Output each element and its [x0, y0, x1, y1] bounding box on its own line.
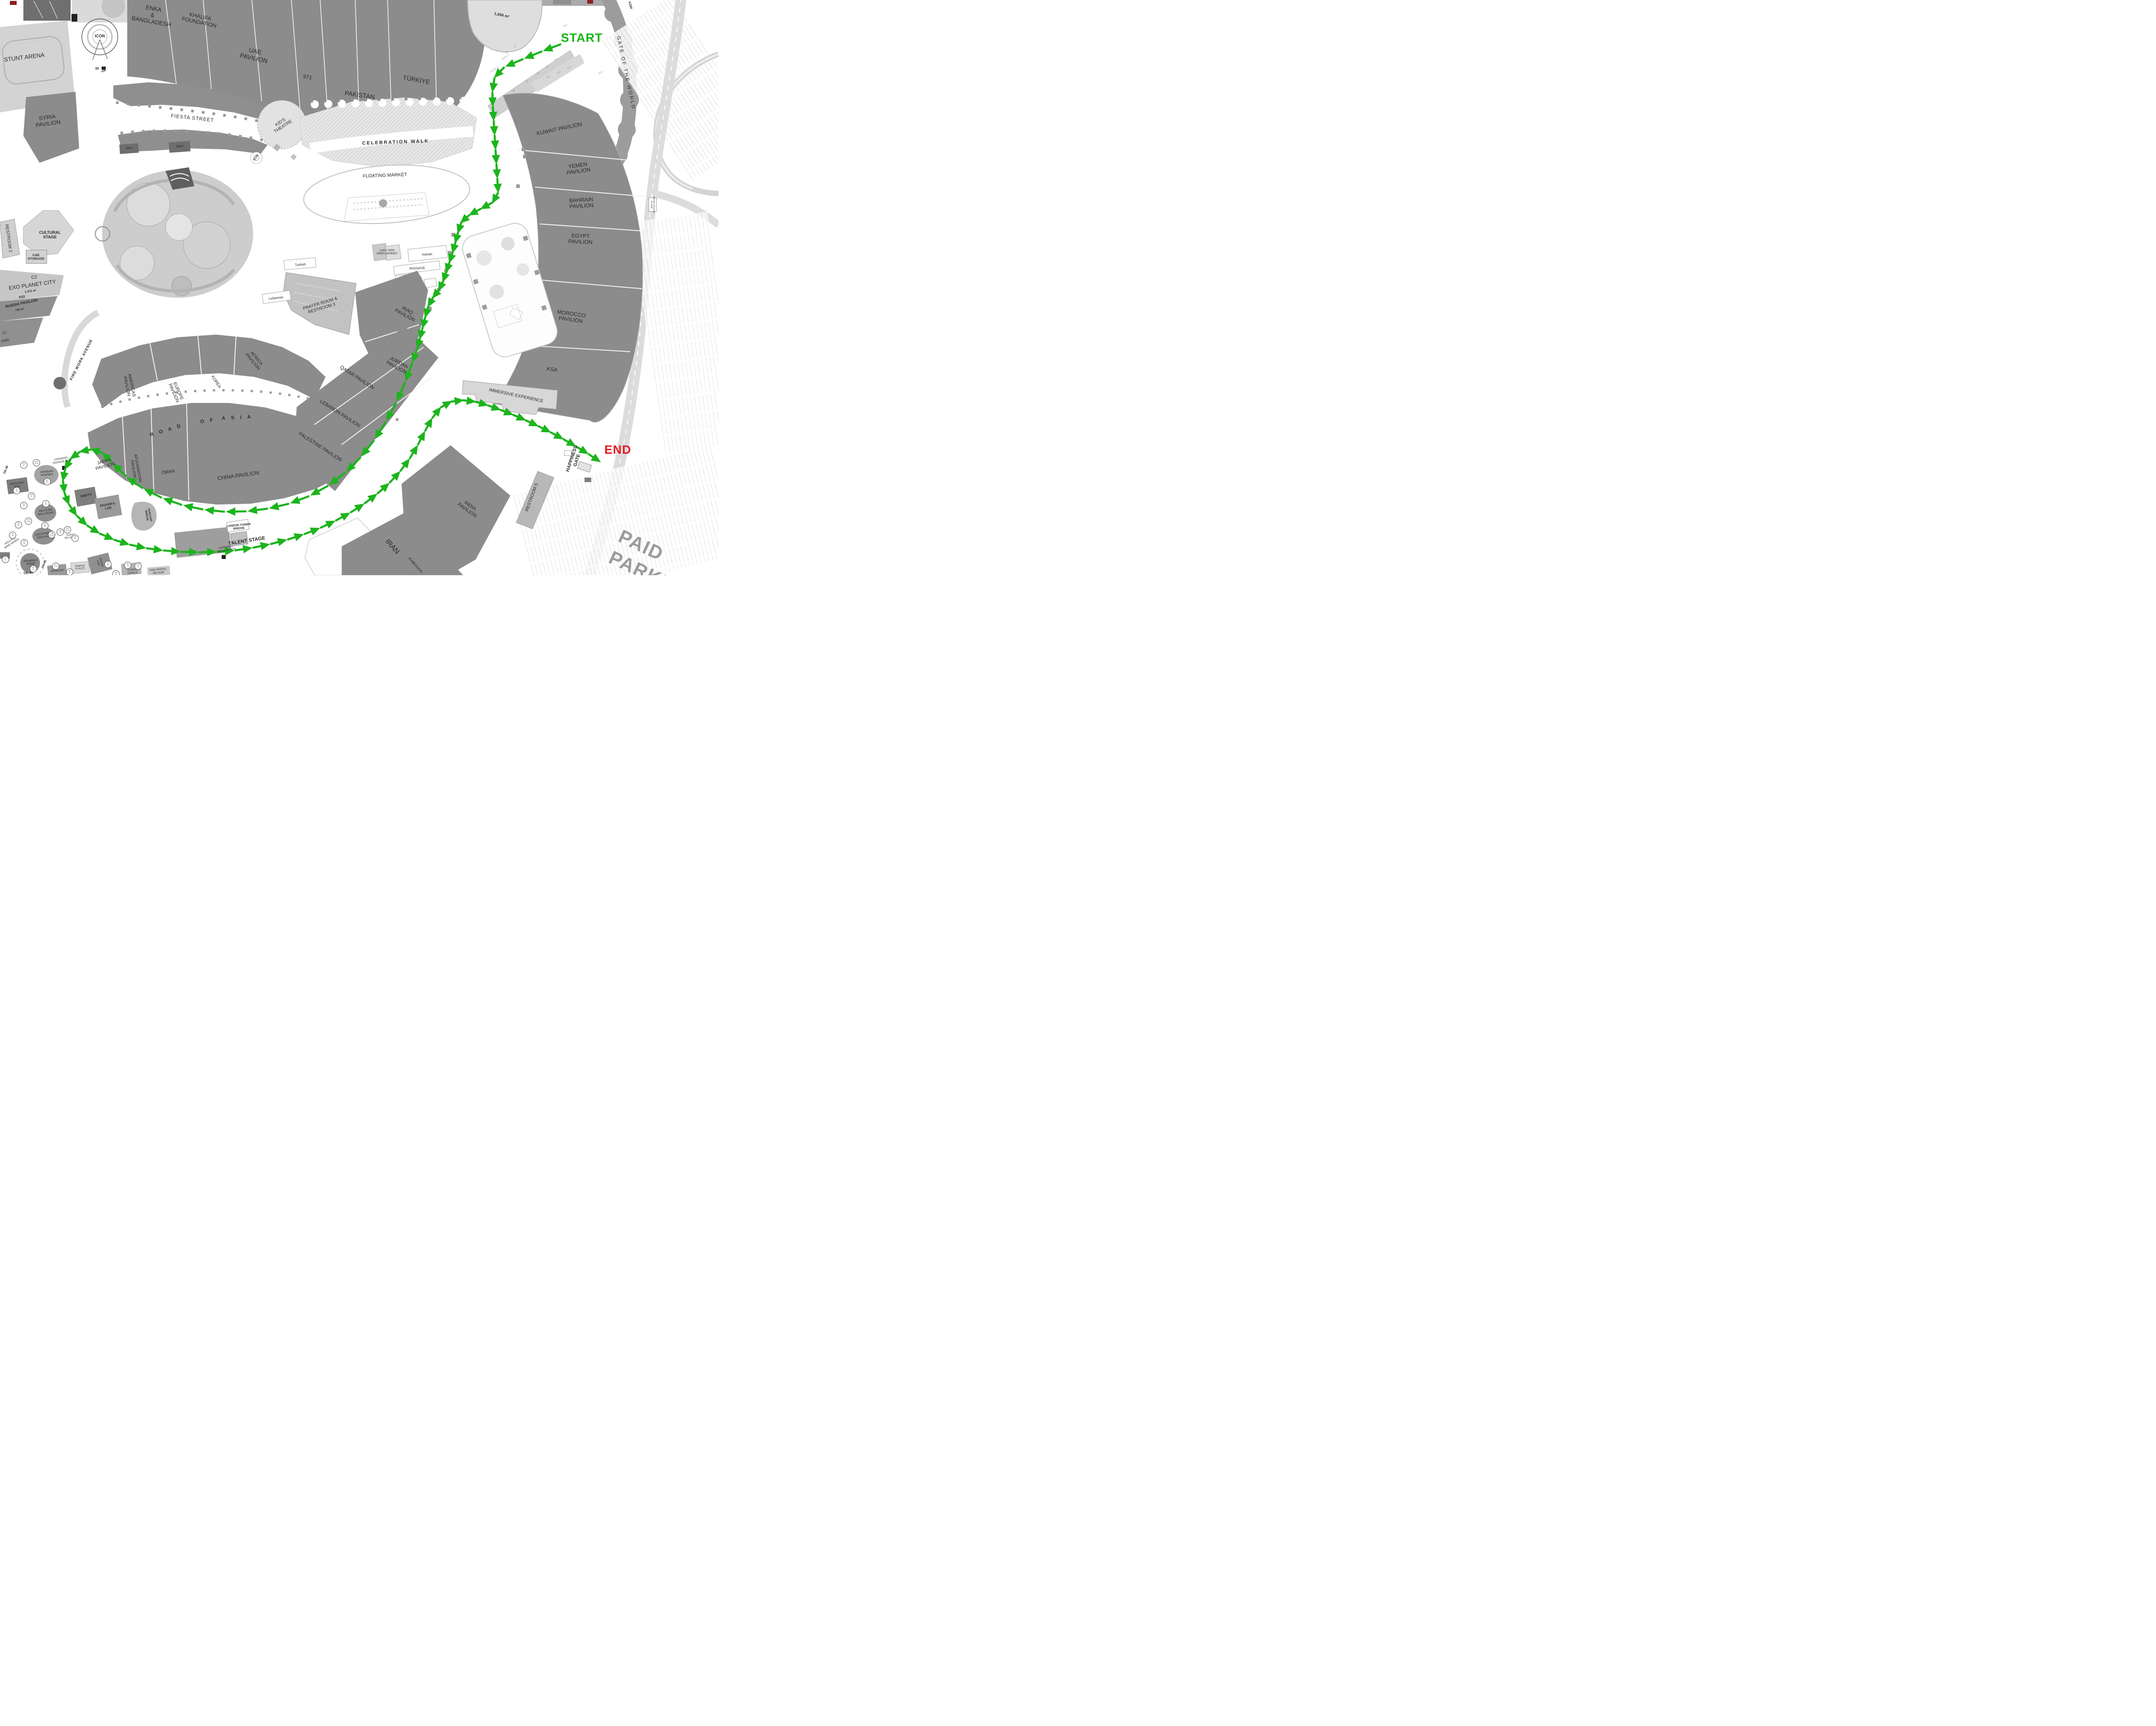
badge-atm-01: ATM 01 — [28, 492, 35, 500]
label-iranian: Iranian — [422, 252, 432, 257]
label-fire-work-avenue: FIRE WORK AVENUE — [69, 339, 94, 381]
badge-sg-21: SG 21 — [134, 563, 142, 570]
badge-ag-19: AG 19 — [124, 562, 131, 569]
label-waste-station: WASTE STATION 52 SQM — [651, 197, 655, 213]
badge-sg-04: SG 04 — [15, 521, 22, 528]
label-palestine-pavilion: PALESTINE PAVILION — [298, 431, 343, 463]
badge-vm-03-04: VM 03-04 — [33, 459, 40, 466]
label-s12: S12 — [563, 23, 568, 28]
label-khalifa-foundation: KHALIFA FOUNDATION — [181, 10, 218, 30]
label-ksa: KSA — [546, 366, 558, 374]
label-mexican-balloons: MEXICAN BALLOONS — [38, 508, 54, 516]
label-ce-storage: C&E STORAGE — [28, 254, 45, 261]
label-celebration-walk: CELEBRATION WALK — [362, 139, 429, 147]
badge-gr-01: GR 01 — [71, 535, 79, 542]
label-c2-area: 1,472 m² — [25, 289, 37, 294]
label-n971: 971 — [303, 74, 312, 81]
label-london-tower-bridge: LONDON TOWER BRIDGE — [226, 523, 251, 531]
label-p21-frag-2: AND — [1, 338, 9, 344]
label-retail-b: RETAIL B — [491, 66, 499, 72]
badge-at-09: AT 09 — [41, 522, 49, 529]
label-turkiye: TÜRKİYE — [402, 74, 430, 86]
label-s1: S1 — [554, 58, 558, 62]
label-prayer-room: PRAYER ROOM & RESTROOM 3 — [303, 296, 339, 316]
label-road-of-asia-3: A S I A — [222, 414, 253, 421]
label-qatar-pavilion: QATAR PAVILION — [339, 365, 375, 391]
label-lebanese: Lebanese — [268, 295, 284, 301]
label-stunt-arena: STUNT ARENA — [4, 52, 45, 63]
label-s10: S10 — [556, 71, 562, 76]
label-c2: C2 — [31, 275, 37, 281]
label-iraq-pavilion: IRAQ PAVILION — [394, 303, 419, 323]
label-cs-1: CS-1 — [126, 147, 133, 150]
label-s2: S2 — [545, 65, 549, 69]
label-passage: PASSAGE — [409, 266, 425, 271]
label-turkish: Turkish — [295, 263, 306, 267]
label-roaming-rome: ROAMING ROME — [23, 559, 38, 566]
badge-sg-03: SG 03 — [20, 502, 27, 509]
badge-vm-08: VM 08 — [57, 528, 64, 536]
label-floating-market: FLOATING MARKET — [363, 172, 407, 179]
label-kuwait-pavilion: KUWAIT PAVILION — [536, 121, 582, 137]
label-paw-patrol: PAW PATROL 300 SQM — [150, 568, 167, 575]
label-female-toilet: FEMALE (TOILET) — [75, 564, 85, 571]
label-europe-pavilion: EUROPE PAVILION — [167, 381, 185, 403]
label-iran-pavilion: IRAN — [384, 538, 401, 556]
label-k200: K200 — [627, 1, 633, 9]
label-enka-bangladesh: ENKA & BANGLADESH — [131, 2, 174, 28]
label-morocco-pavilion: MOROCCO PAVILION — [556, 309, 586, 325]
label-gate-of-the-world: GATE OF THE WORLD — [616, 36, 637, 110]
label-tr-46: TR-46 — [3, 465, 9, 475]
label-km: KM — [101, 69, 107, 74]
label-kids-theatre: KID'S THEATRE — [271, 115, 294, 134]
label-immersive-experience: IMMERSIVE EXPERIENCE — [489, 388, 544, 404]
label-carnaval-signage-box-1: CARNAVAL SIGNAGE BOX — [52, 456, 71, 465]
map-labels-layer: STARTENDENKA & BANGLADESHKHALIFA FOUNDAT… — [0, 0, 719, 575]
badge-sg-19: SG 19 — [112, 570, 120, 575]
label-s13: S13 — [598, 71, 603, 76]
label-s3: S3 — [536, 72, 540, 76]
label-restroom-2: RESTROOM 2 — [4, 224, 12, 253]
badge-vm-01-02a: VM 01-02A — [48, 531, 55, 538]
label-korea: KOREA — [210, 375, 222, 389]
label-s4: S4 — [525, 80, 529, 84]
label-bahrain-pavilion: BAHRAIN PAVILION — [569, 197, 594, 210]
badge-at-15: AT 15 — [9, 532, 16, 539]
label-oman: OMAN — [161, 469, 175, 475]
label-retail-a: RETAIL A — [501, 54, 510, 60]
label-s11: S11 — [567, 66, 571, 70]
badge-ag-17-18: AG 17-18 — [52, 563, 59, 570]
label-s7: S7 — [513, 45, 518, 49]
label-p21-frag-1: 21 — [2, 331, 7, 336]
badge-at-23: AT 23 — [30, 565, 37, 572]
label-p22-area: 739 m² — [15, 307, 25, 312]
badge-at-13: AT 13 — [2, 556, 9, 563]
label-bowling: BOWLING — [51, 569, 64, 573]
label-arabian-horses: ARABIAN HORSES — [40, 470, 54, 478]
badge-tkt-b-10: TKT B-10 — [64, 526, 71, 533]
label-pakistan: PAKISTAN — [344, 90, 375, 101]
label-cs-2: CS-2 — [176, 145, 183, 148]
label-vroom-uae: VROOM UAE — [95, 557, 104, 568]
label-start: START — [561, 31, 603, 45]
label-americas-pavilion: AMERICAS PAVILION — [122, 373, 137, 398]
label-egypt-pavilion: EGYPT PAVILION — [568, 233, 593, 246]
label-afghanistan-pavilion: AFGHANISTAN PAVILION — [129, 454, 143, 483]
label-lebanon-pavilion: LEBANON PAVILION — [319, 398, 362, 429]
expo-route-map: STARTENDENKA & BANGLADESHKHALIFA FOUNDAT… — [0, 0, 719, 575]
label-hungary-bridge: HUNGARY BRIDGE — [144, 508, 152, 523]
label-icon-tower: ICON — [95, 34, 105, 38]
label-japan-pavilion: JAPAN PAVILION — [94, 456, 116, 471]
label-drifty: DRIFTY — [80, 493, 92, 499]
label-tr-45: TR-45 — [41, 560, 48, 569]
badge-at-29: AT 29 — [13, 487, 20, 494]
label-cultural-stage: CULTURAL STAGE — [39, 230, 61, 239]
label-road-of-asia-1: R O A D — [149, 423, 183, 438]
label-happiness-gate: HAPPINESS GATE — [565, 445, 584, 474]
label-jordan-pavilion: JORDAN PAVILION — [385, 355, 410, 376]
label-fiesta-street: FIESTA STREET — [170, 113, 214, 123]
label-area-1606: 1,606 m² — [494, 12, 509, 19]
badge-at-01: AT 01 — [44, 478, 51, 485]
badge-ag-01: AG 01 — [20, 461, 27, 469]
label-end: END — [604, 443, 631, 456]
label-carnaval-signage-box-2: CARNAVAL SIGNAGE BOX — [216, 545, 236, 554]
label-s5: S5 — [512, 89, 516, 93]
badge-at-08: AT 08 — [104, 561, 112, 568]
label-lake-side-market: LAKE SIDE OPEN MARKET — [376, 249, 397, 256]
label-africa-pavilion: AFRICA PAVILION — [244, 349, 265, 371]
label-road-of-asia-2: O F — [200, 417, 216, 425]
badge-tkt-c-09: TKT C-09 — [25, 518, 32, 525]
label-icon-plaza: ICON — [253, 154, 259, 161]
label-china-pavilion: CHINA PAVILION — [217, 470, 260, 482]
label-iran-ext-2: TENSION — [411, 561, 423, 574]
label-p22: P22 — [19, 295, 26, 300]
label-syria-pavilion: SYRIA PAVILION — [34, 112, 61, 128]
label-s9: S9 — [546, 76, 550, 80]
badge-ag-16: AG 16 — [66, 568, 73, 575]
label-yemen-pavilion: YEMEN PAVILION — [566, 161, 591, 176]
label-uae-pavilion: UAE PAVILION — [239, 45, 270, 65]
label-india-pavilion: INDIA PAVILION — [456, 497, 481, 519]
label-restroom-5: RESTROOM 5 — [524, 483, 539, 512]
badge-at-22: AT 22 — [42, 500, 49, 507]
badge-sg-05: SG 05 — [21, 539, 28, 546]
label-diggers-lab: DIGGER'S LAB — [100, 502, 116, 511]
